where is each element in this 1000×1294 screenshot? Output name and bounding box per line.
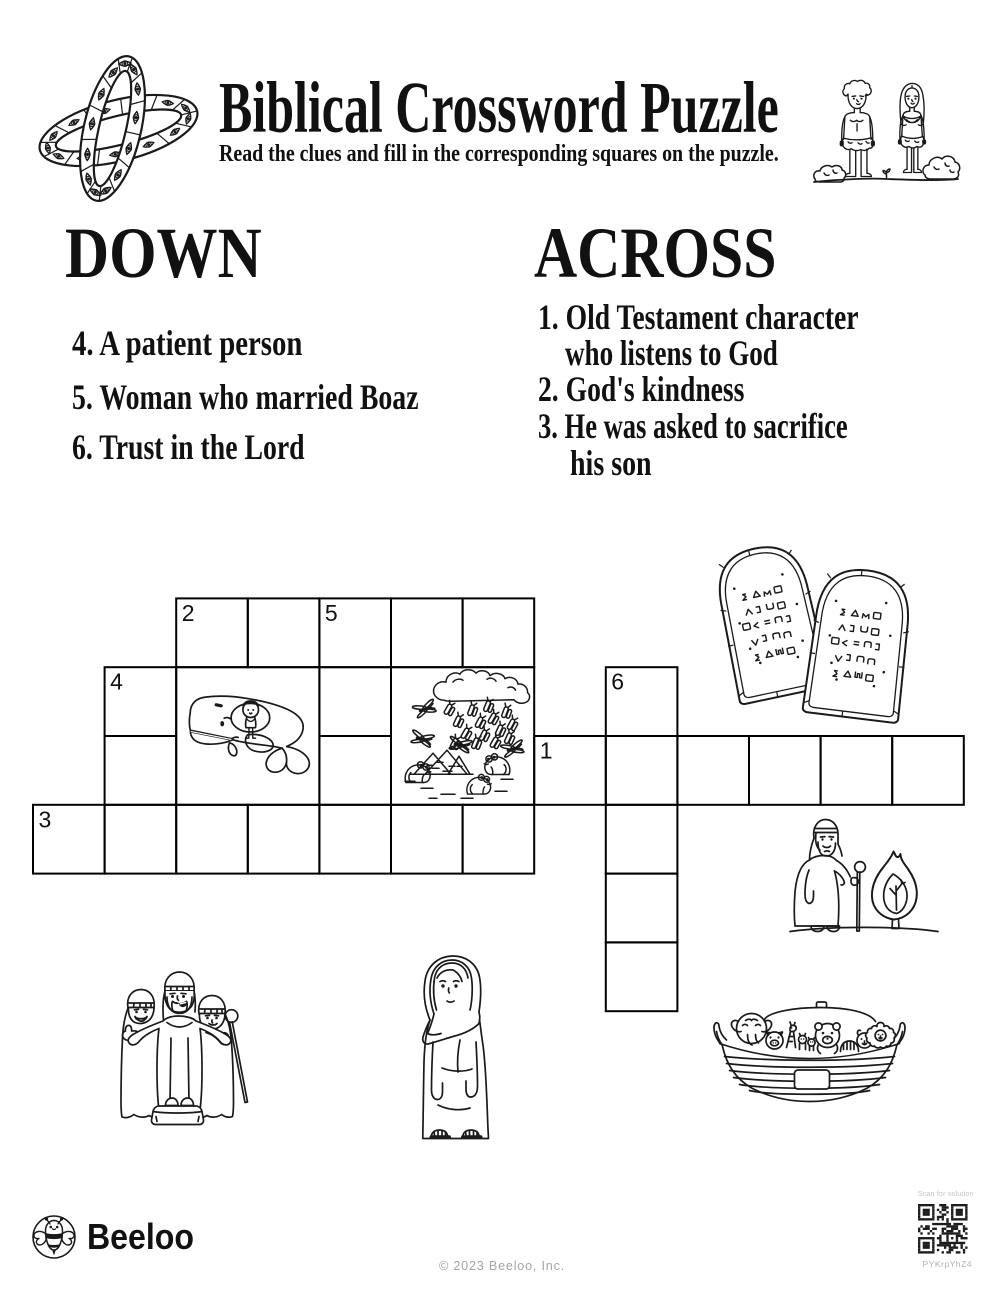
- svg-text:4: 4: [110, 669, 123, 695]
- svg-text:5: 5: [325, 600, 338, 626]
- svg-text:1: 1: [540, 738, 553, 764]
- svg-text:2: 2: [182, 600, 195, 626]
- svg-text:3: 3: [39, 806, 52, 832]
- svg-text:6: 6: [611, 669, 624, 695]
